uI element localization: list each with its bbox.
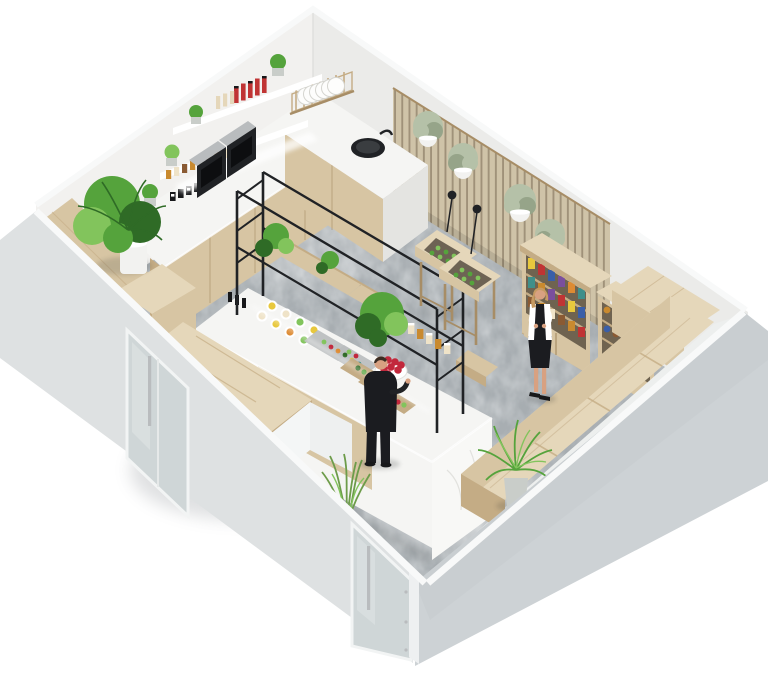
man-hand	[405, 378, 410, 383]
woman-skirt	[528, 336, 552, 368]
man-shoe	[365, 462, 376, 467]
man-torso	[364, 371, 397, 432]
sink-bowl	[356, 141, 380, 154]
man-leg	[366, 428, 377, 463]
door-reflection	[132, 342, 150, 450]
lamp-icon	[448, 191, 457, 200]
render-stage	[0, 0, 768, 675]
woman-leg	[534, 364, 538, 392]
lamp-icon	[473, 205, 482, 214]
woman-vest	[534, 304, 546, 340]
man-shoe	[381, 463, 392, 468]
door-handle	[148, 356, 151, 426]
corner-trim	[409, 570, 419, 664]
man-leg	[380, 429, 390, 464]
woman-leg	[542, 365, 546, 394]
door-handle	[367, 546, 370, 610]
scene-svg	[0, 0, 768, 675]
